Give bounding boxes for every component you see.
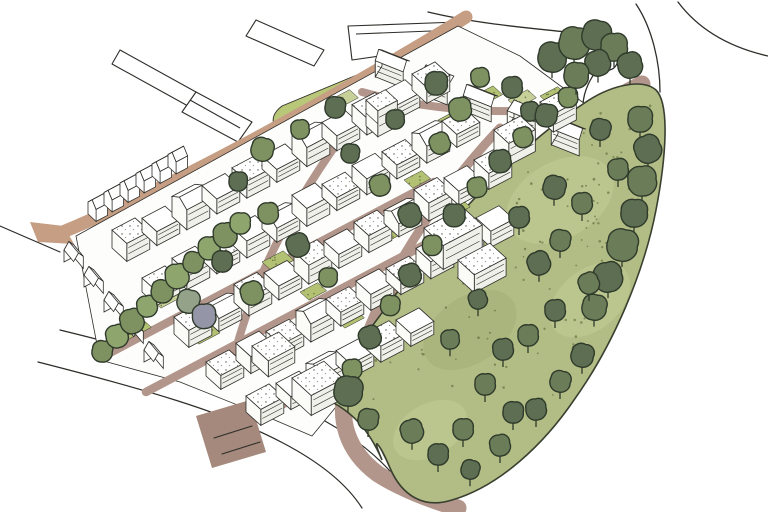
tree-canopy (466, 176, 488, 198)
grass-dot (455, 358, 457, 360)
grass-dot (597, 162, 599, 164)
grass-dot (601, 259, 603, 261)
grass-dot (145, 322, 147, 324)
tree-canopy (509, 206, 530, 228)
grass-dot (564, 319, 566, 321)
tree (466, 176, 488, 198)
grass-dot (566, 178, 568, 180)
grass-dot (546, 94, 548, 96)
grass-dot (409, 183, 411, 185)
tree-canopy (442, 203, 466, 228)
grass-dot (549, 288, 551, 290)
grass-dot (468, 316, 470, 318)
tree-canopy (422, 235, 443, 256)
tree-canopy (424, 70, 449, 96)
grass-dot (525, 97, 527, 99)
grass-dot (587, 246, 589, 248)
grass-dot (518, 198, 520, 200)
grass-dot (573, 319, 575, 321)
grass-dot (392, 236, 394, 238)
grass-dot (584, 318, 586, 320)
grass-dot (274, 257, 276, 259)
grass-dot (522, 229, 525, 232)
tree-canopy (571, 192, 592, 214)
grass-dot (505, 366, 507, 368)
tree-canopy (545, 299, 566, 321)
grass-dot (516, 202, 519, 205)
tree-canopy (628, 166, 657, 197)
grass-dot (445, 306, 447, 308)
tree-canopy (488, 149, 512, 174)
grass-dot (554, 89, 556, 91)
grass-dot (275, 263, 277, 265)
grass-dot (419, 176, 421, 178)
grass-dot (528, 91, 530, 93)
grass-dot (419, 183, 421, 185)
tree (488, 149, 512, 174)
tree-canopy (386, 110, 405, 130)
tree (318, 267, 338, 288)
grass-dot (620, 151, 622, 153)
grass-dot (374, 359, 377, 362)
tree-canopy (475, 373, 496, 395)
grass-dot (494, 364, 496, 366)
grass-dot (487, 338, 489, 340)
grass-dot (421, 349, 423, 351)
grass-dot (313, 293, 315, 295)
tree (448, 96, 473, 122)
tree-canopy (525, 398, 547, 421)
grass-dot (581, 239, 583, 241)
tree-canopy (627, 105, 654, 133)
grass-dot (649, 105, 652, 108)
grass-dot (583, 132, 585, 134)
tree-canopy (452, 418, 474, 441)
tree-canopy (441, 329, 460, 349)
tree (228, 171, 248, 192)
grass-dot (310, 298, 312, 300)
tree-canopy (291, 119, 310, 139)
grass-dot (160, 305, 162, 307)
tree-canopy (518, 324, 539, 346)
grass-dot (575, 335, 578, 338)
grass-dot (502, 386, 505, 389)
grass-dot (307, 294, 309, 296)
grass-dot (530, 182, 533, 185)
tree-canopy (229, 212, 251, 235)
grass-dot (605, 152, 607, 154)
grass-dot (585, 227, 587, 229)
grass-dot (494, 310, 496, 312)
grass-dot (537, 352, 539, 354)
grass-dot (524, 248, 526, 250)
grass-dot (522, 279, 524, 281)
tree (258, 203, 279, 225)
grass-dot (585, 185, 587, 187)
tree-canopy (502, 77, 523, 99)
grass-dot (552, 394, 554, 396)
grass-dot (575, 265, 577, 267)
grass-dot (593, 178, 596, 181)
tree (422, 235, 443, 256)
tree-canopy (492, 338, 514, 361)
grass-dot (592, 222, 594, 224)
tree-canopy (258, 203, 279, 225)
grass-dot (389, 361, 391, 363)
tree-canopy (620, 198, 649, 228)
grass-dot (594, 215, 596, 217)
tree (229, 212, 251, 235)
grass-dot (417, 368, 419, 370)
grass-dot (567, 205, 569, 207)
grass-dot (515, 266, 517, 268)
tree-canopy (607, 158, 629, 181)
grass-dot (303, 290, 305, 292)
tree (442, 203, 466, 228)
grass-dot (543, 328, 545, 330)
grass-dot (591, 144, 593, 146)
grass-dot (527, 171, 529, 173)
grass-dot (477, 336, 480, 339)
grass-dot (572, 343, 574, 345)
grass-dot (601, 246, 603, 248)
tree (386, 110, 405, 130)
grass-dot (599, 112, 602, 115)
grass-dot (451, 385, 454, 388)
grass-dot (272, 260, 274, 262)
tree (192, 304, 216, 329)
grass-dot (372, 398, 374, 400)
grass-dot (597, 222, 599, 224)
tree (470, 67, 490, 88)
grass-dot (581, 185, 583, 187)
grass-dot (598, 184, 600, 186)
tree (424, 70, 449, 96)
grass-dot (580, 321, 583, 324)
tree-canopy (470, 67, 490, 88)
tree (502, 77, 523, 99)
tree-canopy (192, 304, 216, 329)
grass-dot (422, 353, 425, 356)
grass-dot (612, 156, 614, 158)
tree (291, 119, 310, 139)
tree-canopy (558, 87, 578, 108)
grass-dot (419, 179, 421, 181)
grass-dot (539, 241, 541, 243)
masterplan-drawing (0, 0, 768, 512)
grass-dot (607, 191, 610, 194)
grass-dot (597, 202, 599, 204)
grass-dot (541, 242, 543, 244)
tree-canopy (318, 267, 338, 288)
tree-canopy (427, 443, 449, 466)
grass-dot (322, 286, 324, 288)
grass-dot (493, 92, 495, 94)
masterplan-illustration (0, 0, 768, 512)
grass-dot (596, 218, 598, 220)
grass-dot (523, 256, 525, 258)
grass-dot (547, 94, 549, 96)
tree-canopy (228, 171, 248, 192)
tree (558, 87, 578, 108)
grass-dot (587, 220, 589, 222)
grass-dot (269, 258, 271, 260)
tree-canopy (448, 96, 473, 122)
grass-dot (466, 208, 468, 210)
grass-dot (411, 175, 413, 177)
grass-dot (274, 259, 276, 261)
grass-dot (598, 240, 601, 243)
grass-dot (489, 332, 491, 334)
